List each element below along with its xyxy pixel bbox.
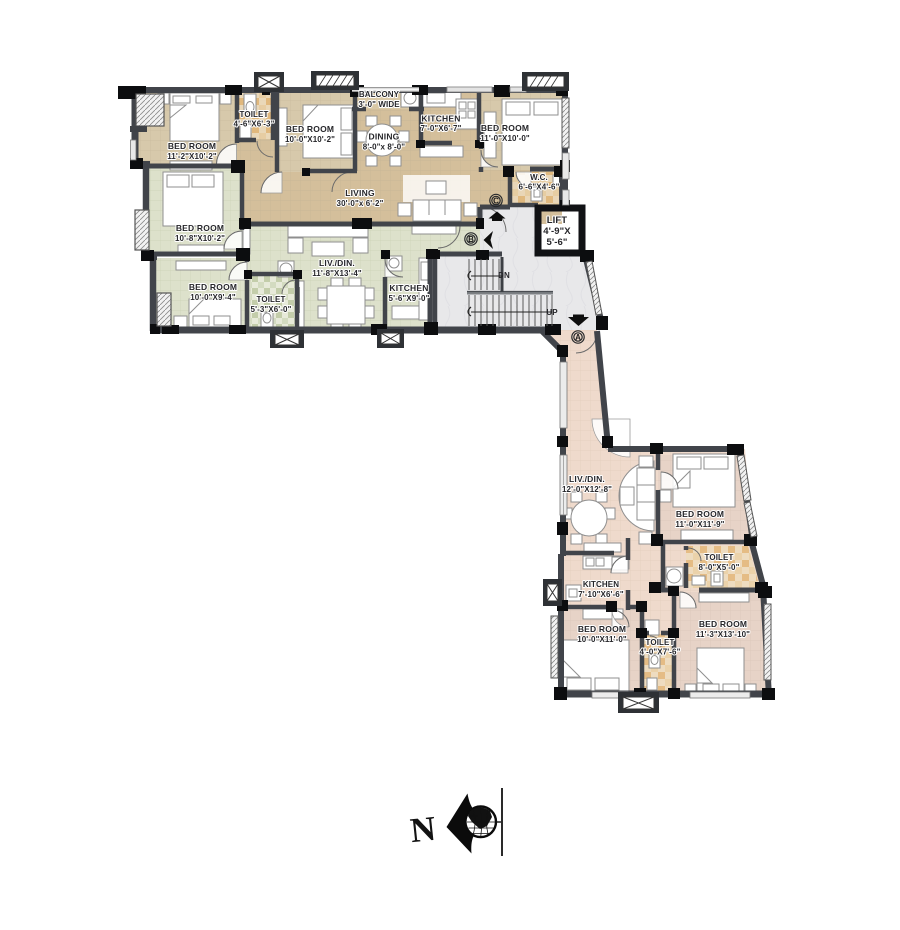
svg-text:LIV./DIN.: LIV./DIN. [319, 258, 355, 268]
svg-text:KITCHEN: KITCHEN [389, 283, 428, 293]
svg-text:4'-9"X: 4'-9"X [543, 226, 571, 237]
svg-text:A: A [575, 333, 581, 342]
svg-text:BED ROOM: BED ROOM [176, 223, 224, 233]
svg-text:5'-6": 5'-6" [547, 237, 568, 248]
svg-text:BED ROOM: BED ROOM [676, 509, 724, 519]
svg-text:11'-3"X13'-10": 11'-3"X13'-10" [696, 630, 750, 639]
svg-text:11'-0"X10'-0": 11'-0"X10'-0" [480, 134, 530, 143]
svg-text:TOILET: TOILET [646, 638, 675, 647]
svg-text:5'-6"X9'-0": 5'-6"X9'-0" [389, 294, 430, 303]
svg-text:LIFT: LIFT [547, 215, 568, 226]
svg-text:10'-0"X11'-0": 10'-0"X11'-0" [577, 635, 627, 644]
svg-text:3'-0" WIDE: 3'-0" WIDE [358, 100, 400, 109]
svg-text:10'-0"X10'-2": 10'-0"X10'-2" [285, 135, 335, 144]
svg-text:C: C [493, 197, 499, 206]
svg-text:BED ROOM: BED ROOM [168, 141, 216, 151]
svg-text:DINING: DINING [369, 132, 400, 142]
svg-text:10'-8"X10'-2": 10'-8"X10'-2" [175, 234, 225, 243]
svg-text:BED ROOM: BED ROOM [578, 624, 626, 634]
svg-text:KITCHEN: KITCHEN [421, 114, 460, 124]
svg-text:UP: UP [546, 308, 558, 317]
svg-text:11'-2"X10'-2": 11'-2"X10'-2" [167, 152, 217, 161]
svg-text:W.C.: W.C. [530, 173, 548, 182]
svg-text:5'-3"X6'-0": 5'-3"X6'-0" [251, 305, 292, 314]
svg-text:TOILET: TOILET [240, 110, 269, 119]
svg-text:10'-0"X9'-4": 10'-0"X9'-4" [190, 293, 236, 302]
svg-text:6'-6"X4'-6": 6'-6"X4'-6" [519, 183, 560, 192]
svg-text:11'-0"X11'-9": 11'-0"X11'-9" [675, 520, 724, 529]
svg-text:BED ROOM: BED ROOM [699, 619, 747, 629]
svg-text:BED ROOM: BED ROOM [286, 124, 334, 134]
svg-text:TOILET: TOILET [705, 553, 734, 562]
svg-text:B: B [468, 235, 474, 244]
svg-text:TOILET: TOILET [257, 295, 286, 304]
svg-text:KITCHEN: KITCHEN [583, 580, 619, 589]
svg-text:4'-6"X6'-3": 4'-6"X6'-3" [234, 120, 275, 129]
svg-text:BALCONY: BALCONY [359, 90, 400, 99]
svg-text:8'-0"X5'-0": 8'-0"X5'-0" [699, 563, 740, 572]
svg-text:N: N [408, 809, 437, 850]
svg-text:12'-0"X12'-8": 12'-0"X12'-8" [562, 485, 612, 494]
svg-text:7'-0"X6'-7": 7'-0"X6'-7" [421, 124, 462, 133]
svg-text:30'-0"x 6'-2": 30'-0"x 6'-2" [337, 199, 384, 208]
svg-text:LIV./DIN.: LIV./DIN. [569, 474, 605, 484]
svg-text:7'-10"X6'-6": 7'-10"X6'-6" [578, 590, 624, 599]
svg-text:LIVING: LIVING [345, 188, 375, 198]
svg-text:BED ROOM: BED ROOM [481, 123, 529, 133]
svg-text:8'-0"x 8'-0": 8'-0"x 8'-0" [363, 143, 405, 152]
svg-text:4'-0"X7'-6": 4'-0"X7'-6" [640, 648, 681, 657]
svg-text:11'-8"X13'-4": 11'-8"X13'-4" [312, 269, 362, 278]
svg-text:BED ROOM: BED ROOM [189, 282, 237, 292]
svg-text:DN: DN [498, 271, 510, 280]
